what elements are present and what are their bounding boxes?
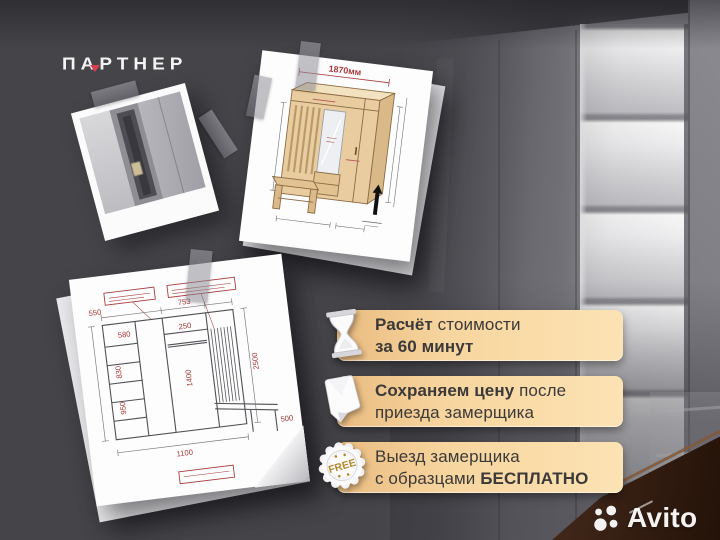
- svg-text:1100: 1100: [176, 448, 193, 459]
- avito-watermark: Avito: [592, 502, 697, 534]
- brand-logo-text: ПАРТНЕР: [62, 55, 187, 75]
- svg-text:830: 830: [113, 365, 123, 379]
- banner-line: с образцами БЕСПЛАТНО: [375, 468, 623, 490]
- svg-text:950: 950: [118, 401, 128, 415]
- hourglass-icon: [325, 308, 363, 363]
- svg-text:550: 550: [88, 308, 102, 318]
- banner-line: Сохраняем цену после: [375, 380, 623, 402]
- svg-text:1400: 1400: [183, 369, 194, 387]
- svg-text:500: 500: [280, 413, 294, 423]
- banner-price-hold: Сохраняем цену после приезда замерщика: [337, 376, 623, 427]
- benefit-banners: Расчёт стоимости за 60 минут Сохраняем ц…: [337, 310, 623, 508]
- svg-text:580: 580: [117, 329, 131, 339]
- banner-line: за 60 минут: [375, 336, 623, 358]
- banner-line: Расчёт стоимости: [375, 314, 623, 336]
- width-dimension-label: 1870мм: [328, 63, 362, 77]
- dimension-values: 550 753 580 250 830 1400 950 2500 1100 5…: [88, 286, 296, 467]
- wardrobe-outline: [102, 309, 247, 439]
- avito-watermark-text: Avito: [627, 502, 697, 534]
- wardrobe-interior-photo: [80, 92, 206, 215]
- banner-free-visit: FREE Выезд замерщика с образцами БЕСПЛАТ…: [337, 442, 623, 493]
- price-paper-icon: [322, 373, 364, 430]
- brand-logo: ПАРТНЕР: [62, 54, 212, 80]
- logo-red-triangle-icon: [90, 65, 100, 72]
- svg-text:250: 250: [178, 321, 192, 331]
- avito-dots-icon: [592, 504, 622, 533]
- ad-canvas: ПАРТНЕР 1870мм: [0, 0, 720, 540]
- banner-line: Выезд замерщика: [375, 446, 623, 468]
- free-badge-icon: FREE: [315, 438, 369, 497]
- svg-text:2500: 2500: [250, 352, 261, 370]
- banner-line: приезда замерщика: [375, 402, 623, 424]
- red-label-boxes: [104, 277, 259, 490]
- bench-outline: [215, 396, 281, 438]
- banner-cost-estimate: Расчёт стоимости за 60 минут: [337, 310, 623, 361]
